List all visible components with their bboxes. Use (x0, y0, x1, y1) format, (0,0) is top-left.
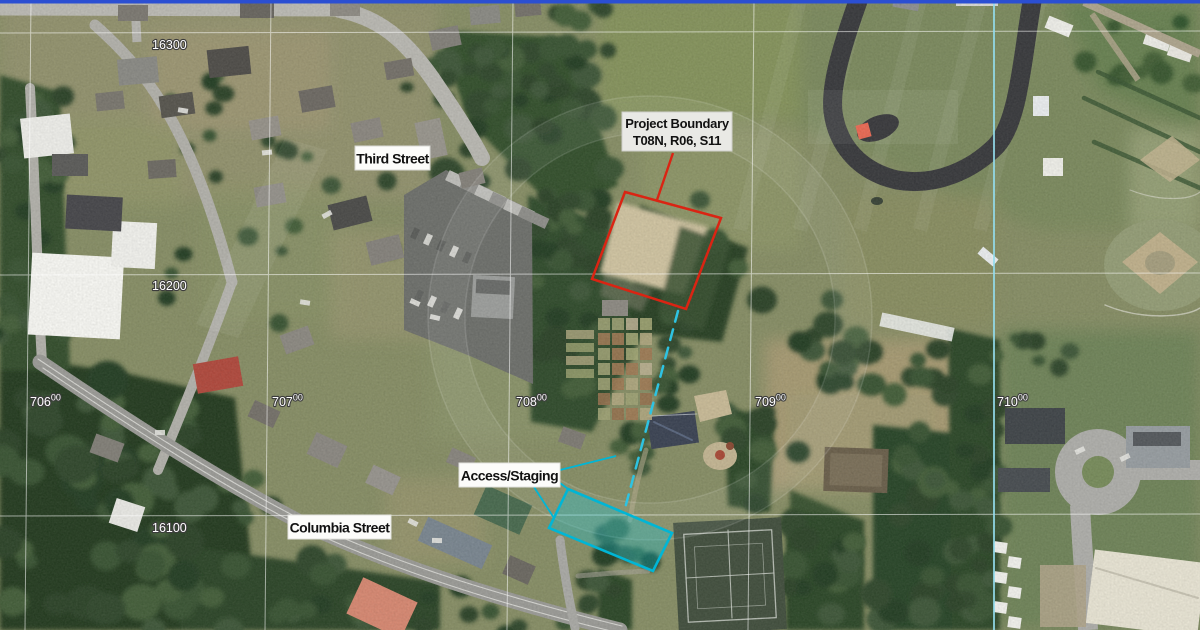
svg-text:Columbia Street: Columbia Street (290, 520, 391, 536)
svg-text:Access/Staging: Access/Staging (461, 468, 558, 484)
svg-text:16200: 16200 (152, 279, 187, 293)
svg-text:T08N, R06, S11: T08N, R06, S11 (633, 133, 721, 148)
svg-text:Project Boundary: Project Boundary (625, 116, 730, 131)
svg-text:Third Street: Third Street (356, 151, 429, 167)
svg-text:16100: 16100 (152, 521, 187, 535)
svg-text:16300: 16300 (152, 38, 187, 52)
